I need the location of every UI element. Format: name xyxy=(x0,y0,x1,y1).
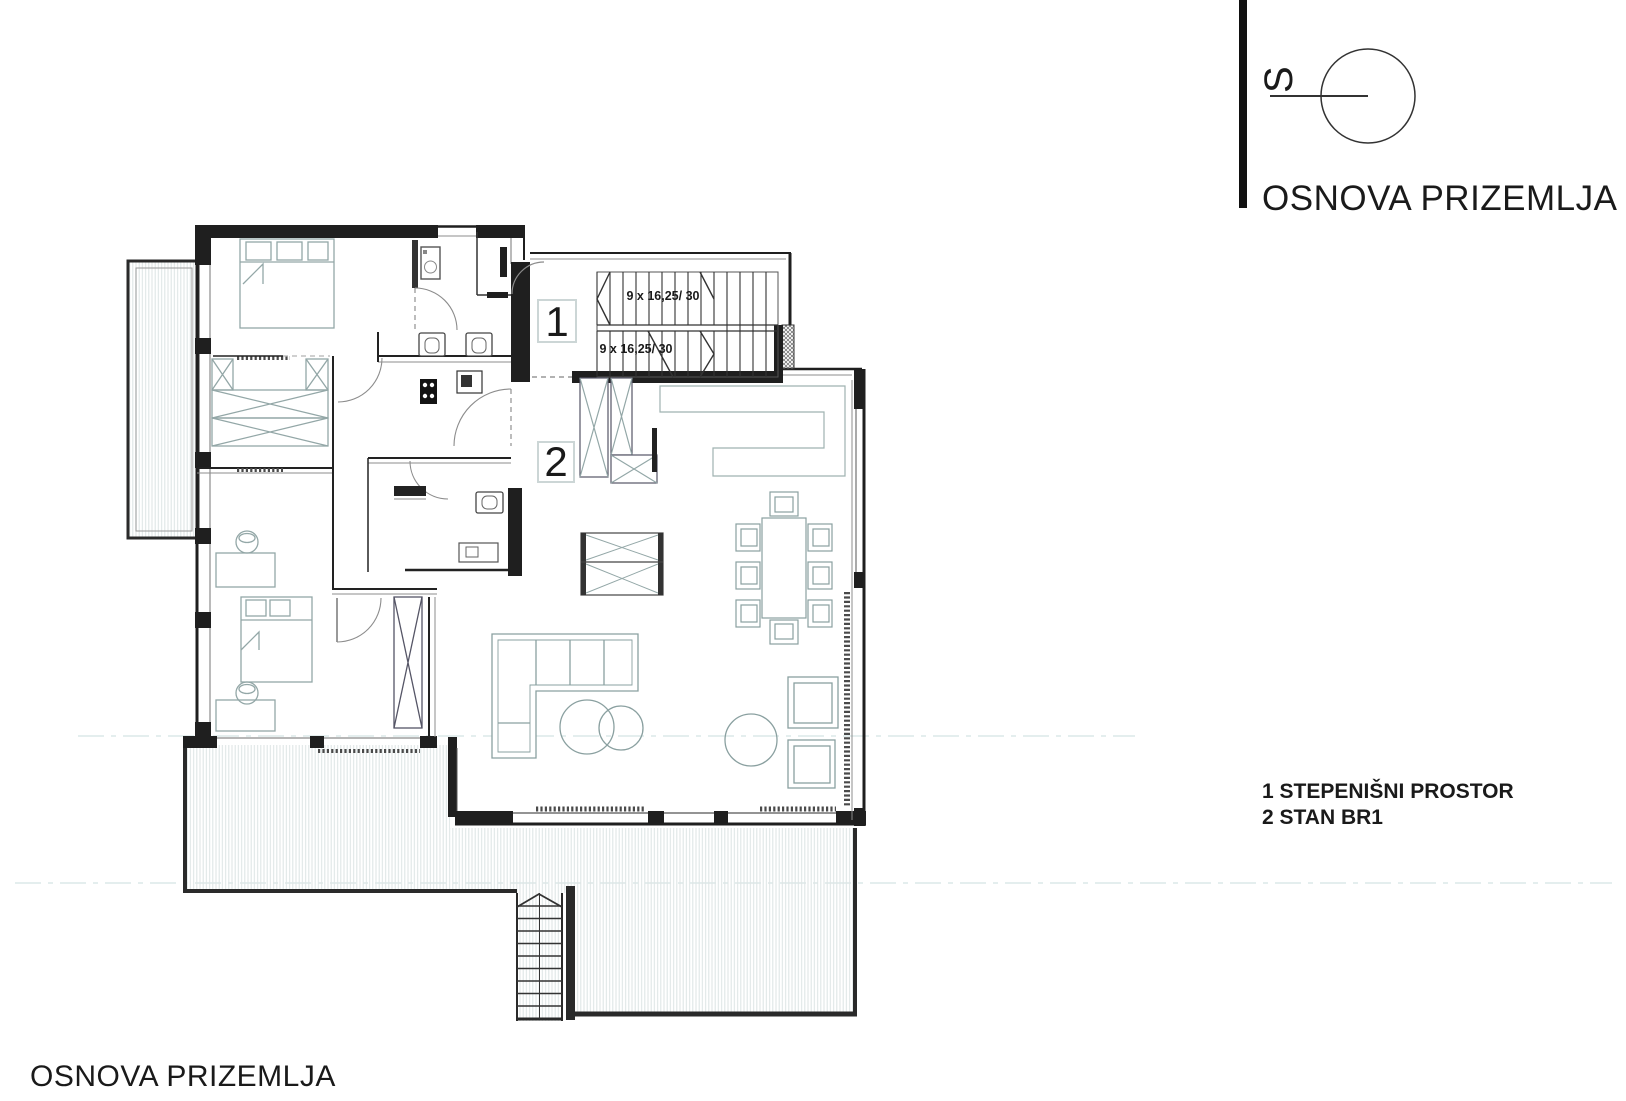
stairwell: 9 x 16,25/ 30 9 x 16,25/ 30 1 xyxy=(511,253,794,383)
legend: 1 STEPENIŠNI PROSTOR 2 STAN BR1 xyxy=(1262,779,1514,829)
door-arc xyxy=(338,358,382,402)
washbasin xyxy=(394,486,426,496)
kitchen-counter xyxy=(660,386,845,476)
kitchen-fixtures xyxy=(420,371,482,404)
terrace xyxy=(183,745,857,1021)
dining-table xyxy=(762,518,806,618)
terrace-stair-wall xyxy=(566,886,575,1020)
sofa xyxy=(492,634,638,758)
bedroom-1 xyxy=(212,239,334,446)
bedroom-2 xyxy=(216,531,422,731)
entry-wardrobes xyxy=(580,378,657,483)
legend-item-1: 1 STEPENIŠNI PROSTOR xyxy=(1262,779,1514,803)
bed xyxy=(240,239,334,328)
legend-item-2: 2 STAN BR1 xyxy=(1262,806,1383,829)
door-arc xyxy=(337,598,381,642)
floor-plan-sheet: 9 x 16,25/ 30 9 x 16,25/ 30 1 2 xyxy=(0,0,1626,1101)
coffee-table xyxy=(560,700,614,754)
lounge-corner xyxy=(725,677,838,788)
sofa-set xyxy=(492,634,643,758)
dining-set xyxy=(736,492,832,644)
armchair xyxy=(788,740,835,788)
north-letter: S xyxy=(1257,66,1301,93)
balcony-left xyxy=(128,261,198,538)
coffee-table xyxy=(599,706,643,750)
stair-annotation-upper: 9 x 16,25/ 30 xyxy=(627,289,700,303)
apartment-label: 2 xyxy=(538,438,574,485)
bathroom-top-fixtures xyxy=(419,247,507,356)
sheet-title-bottom: OSNOVA PRIZEMLJA xyxy=(30,1060,336,1093)
desk xyxy=(216,700,275,731)
bathroom-middle-fixtures xyxy=(394,486,503,562)
title-bar xyxy=(1239,0,1247,208)
desk xyxy=(216,553,275,587)
page-title: OSNOVA PRIZEMLJA xyxy=(1262,179,1618,218)
sideboard xyxy=(581,533,663,595)
door-arc xyxy=(415,288,457,330)
closet-row xyxy=(212,359,328,446)
title-block: S OSNOVA PRIZEMLJA 1 STEPENIŠNI PROSTOR … xyxy=(1239,0,1618,829)
stair-annotation-lower: 9 x 16,25/ 30 xyxy=(600,342,673,356)
stove xyxy=(420,379,437,404)
toilet xyxy=(476,492,503,513)
stair-flights xyxy=(597,272,778,377)
door-arc xyxy=(454,389,511,446)
column-hatch xyxy=(782,325,794,369)
room-label-apartment: 2 xyxy=(544,438,567,485)
room-label-stairwell: 1 xyxy=(545,298,568,345)
wall-toilets xyxy=(419,333,492,356)
wardrobe-tall xyxy=(394,597,422,728)
armchair xyxy=(788,677,838,728)
north-indicator: S xyxy=(1257,49,1415,143)
round-table xyxy=(725,714,777,766)
